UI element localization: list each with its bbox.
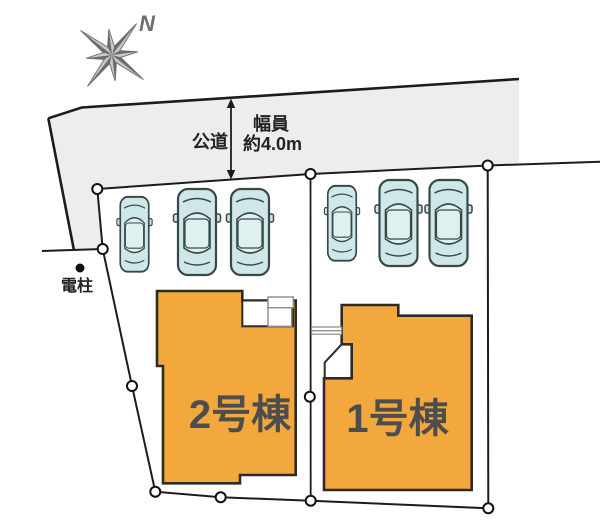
boundary-point-marker <box>483 161 493 171</box>
boundary-point-marker <box>305 392 315 402</box>
boundary-point-marker <box>216 492 226 502</box>
car-top-view-icon <box>117 197 152 272</box>
building-1-approach-step-2 <box>312 331 342 334</box>
road-name-label: 公道 <box>192 131 228 152</box>
building-2-entry-step-2 <box>268 308 292 327</box>
road-width-value: 約4.0m <box>243 133 302 154</box>
building-2: 2号棟 <box>157 291 296 483</box>
building-2-entry-step-1 <box>268 297 293 308</box>
boundary-point-marker <box>306 169 316 179</box>
boundary-point-marker <box>98 244 108 254</box>
site-plan-drawing: 2号棟 1号棟 公道 幅員 約4.0m <box>0 0 600 527</box>
utility-pole-dot <box>76 264 85 273</box>
car-top-view-icon <box>425 180 472 266</box>
car-top-view-icon <box>375 180 422 266</box>
boundary-point-marker <box>306 496 316 506</box>
boundary-point-marker <box>150 487 160 497</box>
site-plan: 2号棟 1号棟 公道 幅員 約4.0m <box>0 0 600 527</box>
building-1: 1号棟 <box>312 305 472 490</box>
building-2-label: 2号棟 <box>189 393 292 437</box>
boundary-point-marker <box>483 503 493 513</box>
north-label: N <box>139 11 156 36</box>
boundary-point-marker <box>127 381 137 391</box>
car-top-view-icon <box>324 186 359 261</box>
car-top-view-icon <box>227 189 274 275</box>
car-top-view-icon <box>174 189 221 275</box>
road-width-label: 幅員 <box>253 113 289 134</box>
utility-pole-label: 電柱 <box>61 276 93 295</box>
building-1-label: 1号棟 <box>346 397 449 441</box>
boundary-point-marker <box>92 184 102 194</box>
